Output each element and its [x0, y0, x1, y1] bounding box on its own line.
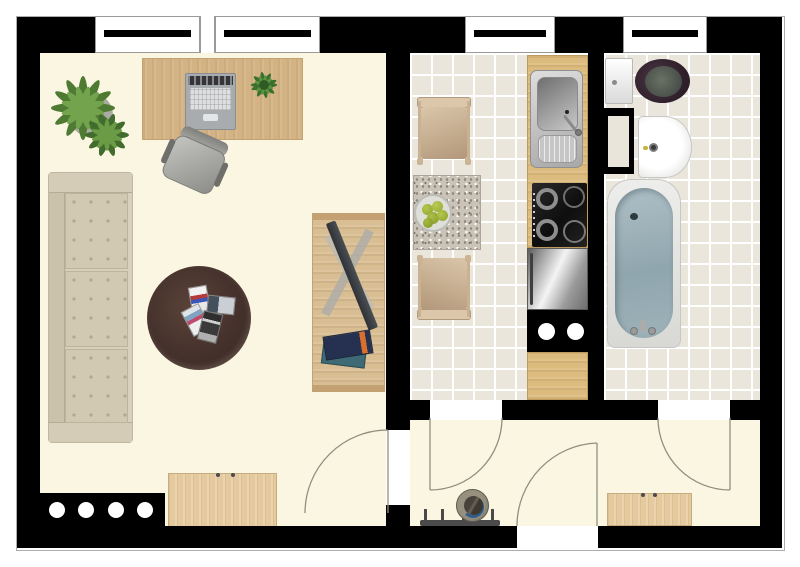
tv-bench-edge-top	[313, 214, 384, 220]
fridge-handle	[530, 253, 533, 305]
bathtub-faucet	[648, 327, 656, 335]
washbasin-faucet	[649, 143, 658, 152]
bathtub-drain	[630, 213, 638, 220]
sink-drainboard	[538, 135, 577, 163]
burner	[536, 188, 558, 210]
door-opening-living	[386, 430, 410, 505]
washbasin	[638, 116, 692, 178]
shoe-cabinet	[607, 493, 692, 526]
toilet-bowl	[645, 66, 682, 97]
cooktop-controls	[533, 193, 535, 237]
appliance-dial	[567, 323, 584, 340]
radiator-vent	[49, 502, 65, 518]
sofa	[48, 172, 133, 443]
wall-living-kitchen	[386, 53, 410, 430]
chair-foot	[465, 255, 471, 262]
bathtub	[607, 179, 681, 348]
chair-backrest	[417, 309, 471, 320]
bathtub-basin	[615, 188, 673, 338]
coat-rack-hook	[441, 509, 444, 521]
radiator-vent	[137, 502, 153, 518]
toilet-seat	[635, 59, 690, 103]
window	[465, 16, 555, 53]
cooktop	[532, 183, 587, 247]
sofa-cushion	[65, 271, 128, 347]
laptop-hinge	[188, 76, 233, 85]
sideboard	[168, 473, 277, 527]
bathtub-spout	[640, 320, 646, 332]
chair-rail	[467, 257, 470, 317]
apple	[437, 210, 448, 221]
chair-foot	[465, 158, 471, 165]
kitchen-sink	[530, 70, 583, 168]
hat-crown	[464, 496, 483, 515]
potted-plant	[35, 60, 145, 175]
burner	[563, 186, 585, 208]
sideboard-knob	[216, 473, 220, 477]
window-sash	[474, 30, 546, 37]
coat-rack-hook	[424, 509, 427, 521]
chair-foot	[417, 255, 423, 262]
window	[215, 16, 320, 53]
sofa-armrest-top	[49, 173, 132, 193]
dining-chair-top	[417, 95, 471, 165]
appliance-block	[527, 310, 588, 352]
door-opening-kitchen	[430, 400, 502, 420]
toilet-button	[612, 80, 617, 85]
appliance-dial	[538, 323, 555, 340]
window-sash	[104, 30, 191, 37]
window-mullion	[200, 16, 215, 53]
laptop-keyboard	[190, 88, 231, 110]
refrigerator	[527, 248, 588, 310]
shoe-cabinet-knob	[653, 493, 657, 497]
laptop	[185, 73, 236, 130]
burner	[563, 220, 586, 243]
wall-living-kitchen-lower	[386, 505, 410, 526]
door-opening-front	[517, 526, 598, 548]
sofa-cushion	[65, 349, 128, 423]
sofa-cushion	[65, 193, 128, 269]
wall-kitchen-bathroom	[588, 53, 604, 420]
radiator-vent	[78, 502, 94, 518]
coat-rack-bar	[420, 520, 500, 526]
chair-seat	[421, 258, 467, 310]
duct-shaft-interior	[608, 116, 629, 167]
hat	[456, 489, 489, 522]
apple	[423, 218, 433, 228]
window	[95, 16, 200, 53]
sofa-armrest-bottom	[49, 422, 132, 442]
chair-rail	[467, 101, 470, 161]
washbasin-tap-dot	[643, 146, 648, 150]
coat-rack-hook	[491, 509, 494, 521]
tv-bench-edge-bottom	[313, 385, 384, 391]
chair-seat	[421, 107, 467, 159]
wall-left	[17, 17, 40, 548]
kitchen-counter-low	[527, 352, 588, 400]
fruit-bowl	[414, 194, 452, 232]
laptop-touchpad	[203, 114, 218, 121]
floor-plan	[0, 0, 800, 567]
sofa-back	[49, 173, 65, 442]
window	[623, 16, 707, 53]
window-sash	[632, 30, 698, 37]
wall-right	[760, 17, 782, 548]
desk-plant	[242, 62, 286, 108]
toilet-tank	[605, 58, 633, 104]
door-opening-bathroom	[658, 400, 730, 420]
dining-chair-bottom	[417, 255, 471, 322]
sideboard-knob	[231, 473, 235, 477]
radiator-vent	[108, 502, 124, 518]
window-sash	[224, 30, 311, 37]
chair-foot	[417, 158, 423, 165]
wall-bottom	[17, 526, 782, 548]
shoe-cabinet-knob	[641, 493, 645, 497]
sink-drain-dot	[565, 110, 569, 114]
sink-faucet-head	[575, 129, 582, 136]
burner	[536, 219, 558, 241]
bathtub-faucet	[630, 327, 638, 335]
